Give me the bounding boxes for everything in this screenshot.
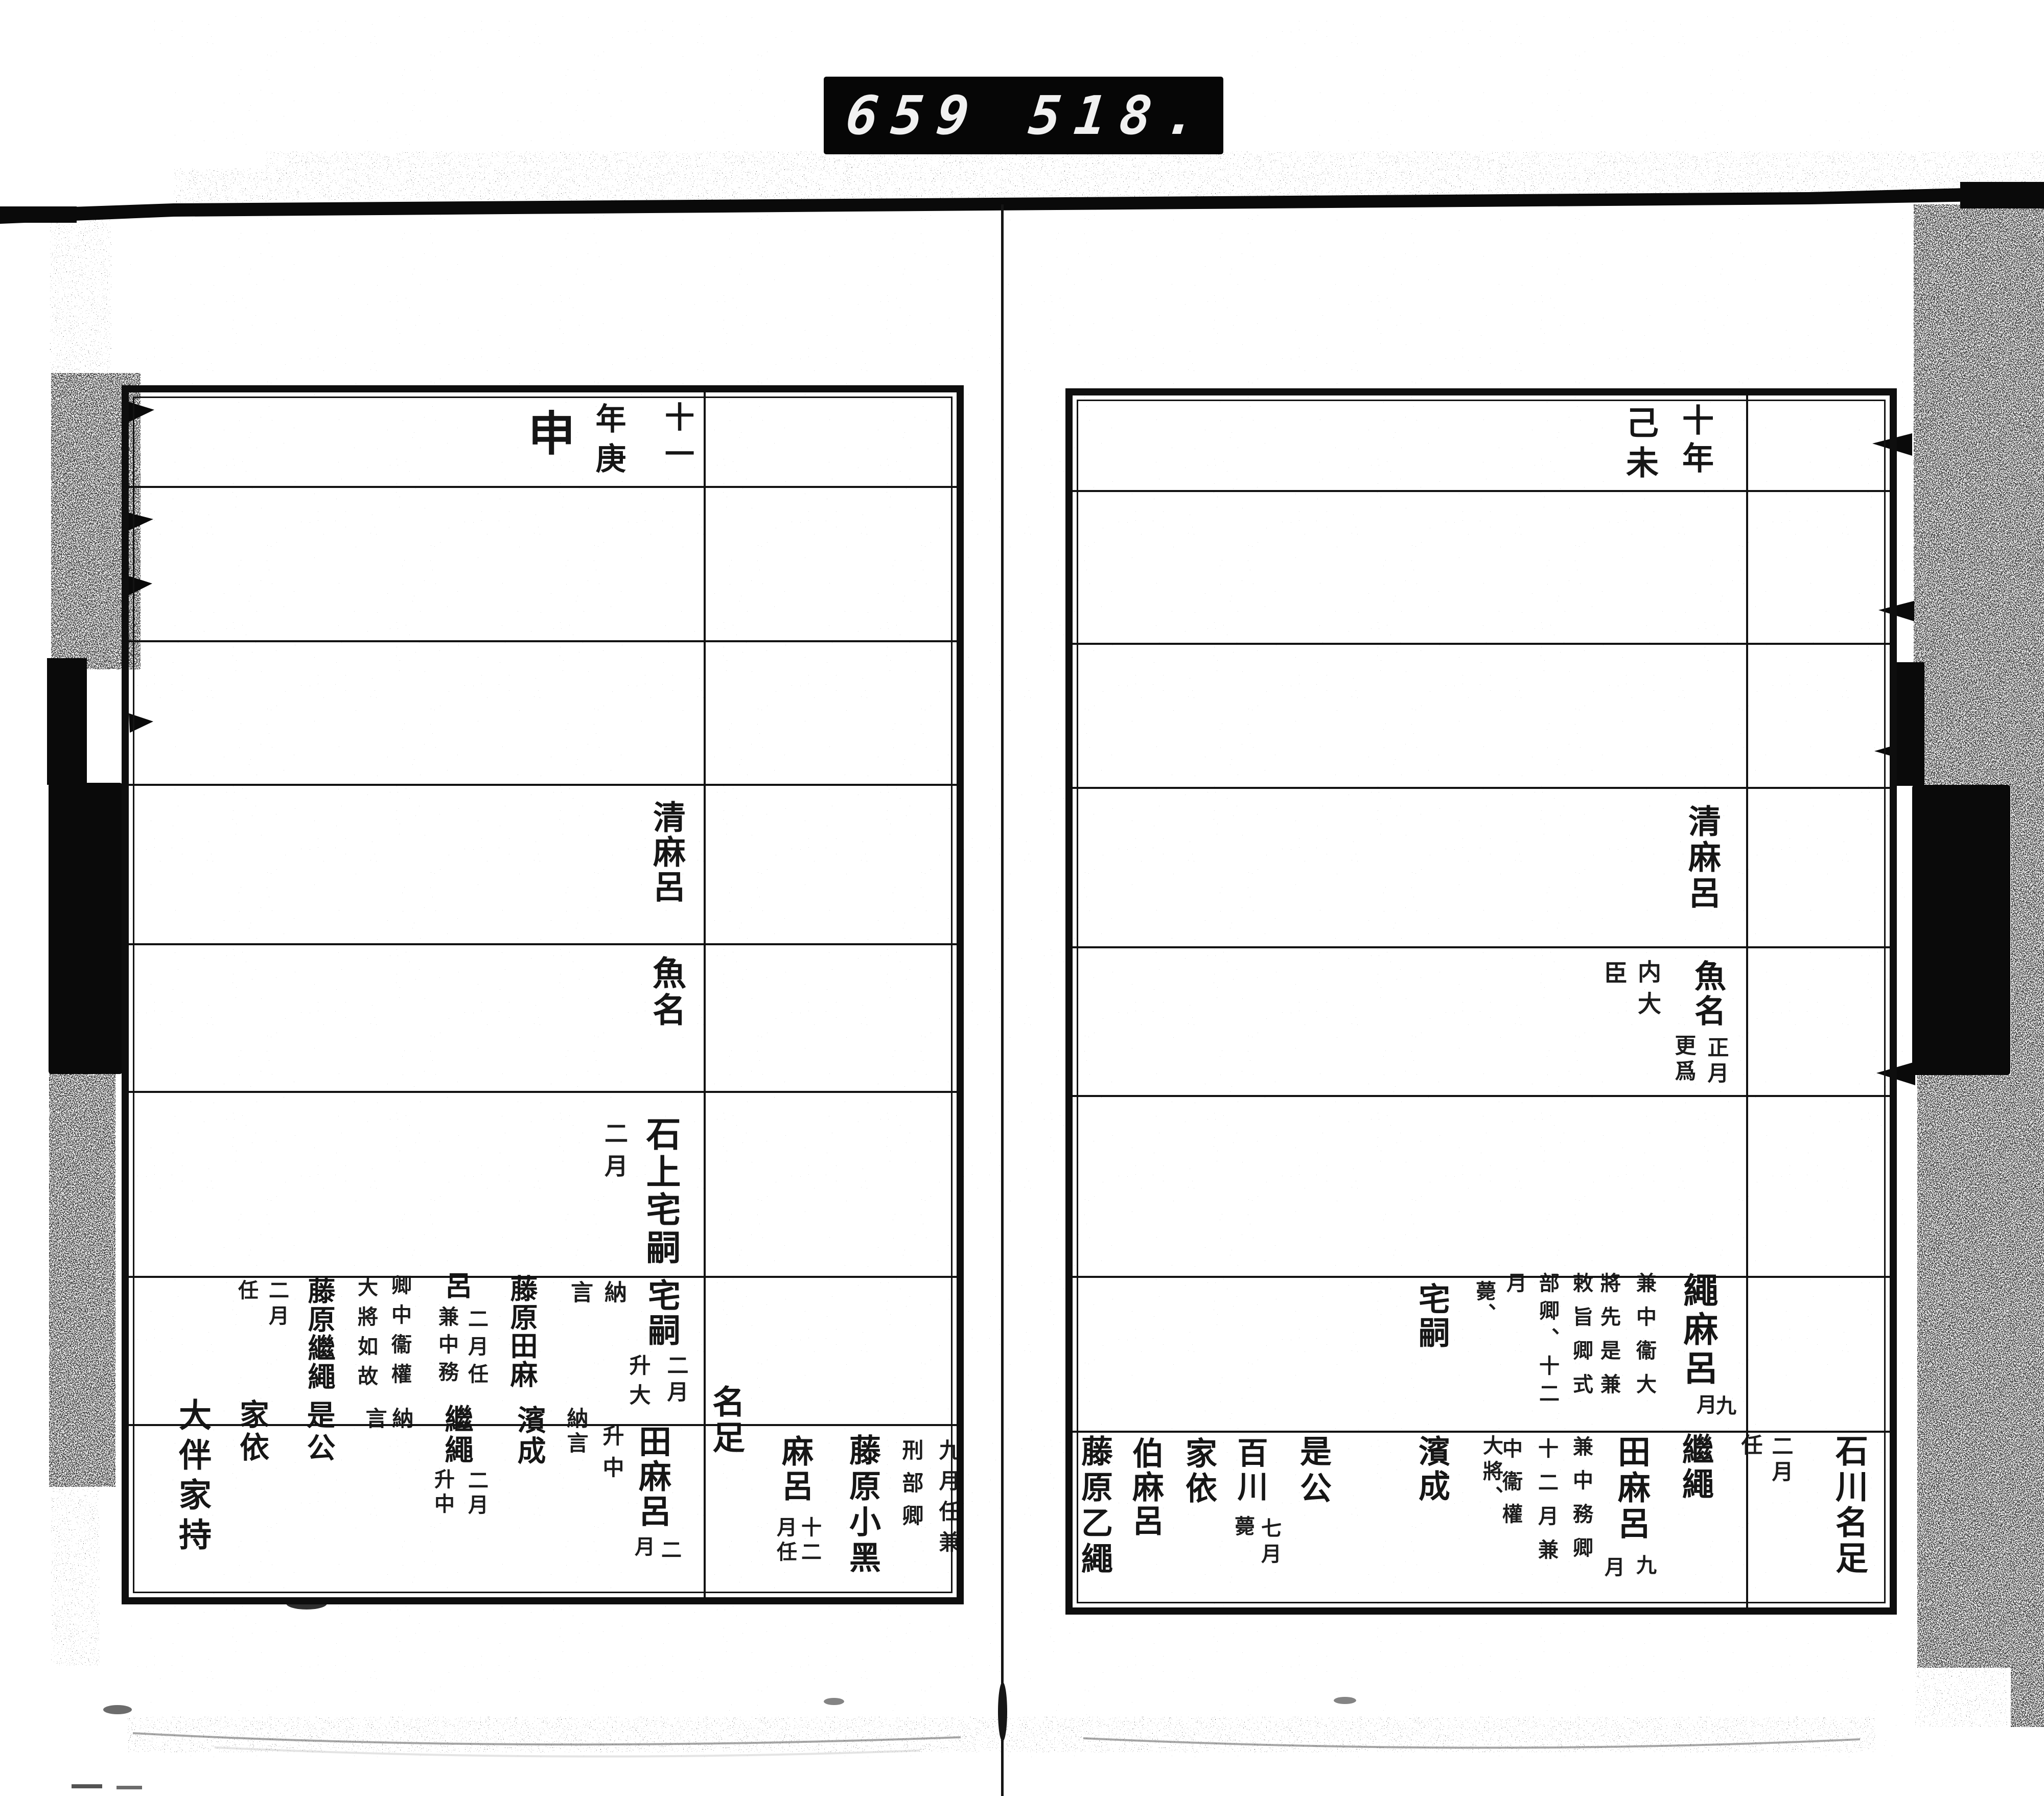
left-page-row-line-3	[129, 784, 957, 786]
frame-counter-right: 518.	[1026, 89, 1213, 142]
right-page-row-line-2	[1073, 643, 1890, 645]
right-page-table	[1065, 388, 1897, 1615]
left-page-table	[122, 385, 964, 1604]
left-page-row-line-1	[129, 486, 957, 488]
page-text-layer: 十一年庚申清麻呂魚名二月石上宅嗣宅嗣二月升大納言藤原田麻呂二月任兼中務卿中衞權大…	[0, 0, 2044, 1796]
right-page-column-divider	[1746, 395, 1748, 1607]
frame-counter-left: 659	[844, 89, 985, 142]
left-page-row-line-5	[129, 1091, 957, 1093]
right-page-row-line-4	[1073, 946, 1890, 948]
left-page-row-line-7	[129, 1424, 957, 1426]
right-page-row-line-3	[1073, 787, 1890, 789]
right-page-table-inner-border	[1077, 400, 1886, 1603]
film-frame-counter: 659 518.	[824, 77, 1223, 154]
left-page-row-line-6	[129, 1276, 957, 1278]
left-page-row-line-4	[129, 943, 957, 945]
right-page-row-line-6	[1073, 1276, 1890, 1278]
left-page-table-inner-border	[133, 396, 953, 1593]
right-page-row-line-1	[1073, 490, 1890, 492]
left-page-row-line-2	[129, 640, 957, 642]
right-page-row-line-7	[1073, 1431, 1890, 1433]
left-page-column-divider	[704, 392, 706, 1597]
scanned-book-spread-screenshot: { "counter": { "left_digits": "659", "ri…	[0, 0, 2044, 1796]
right-page-row-line-5	[1073, 1095, 1890, 1097]
scan-canvas: 659 518. 十一年庚申清麻呂魚名二月石上宅嗣宅嗣二月升大納言藤原田麻呂二月…	[0, 0, 2044, 1796]
